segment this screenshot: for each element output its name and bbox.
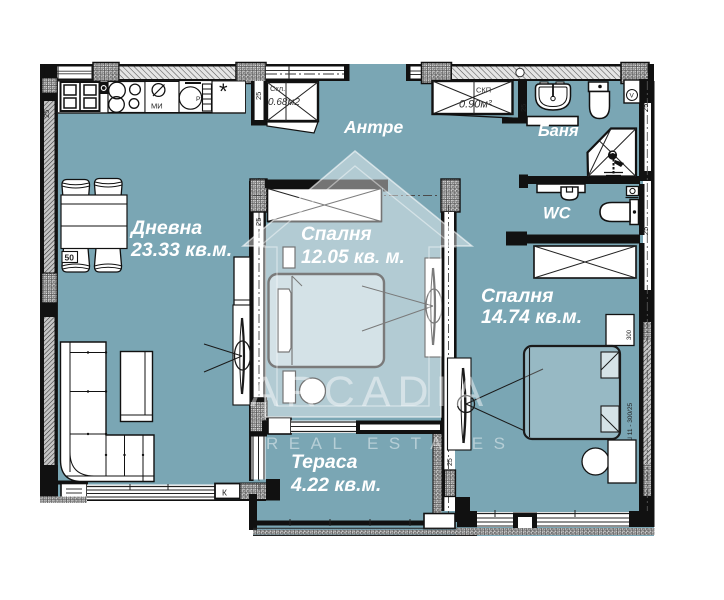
svg-text:25: 25 bbox=[42, 110, 51, 118]
svg-text:Антре: Антре bbox=[343, 117, 403, 137]
svg-text:Дневна: Дневна bbox=[129, 217, 202, 239]
svg-text:50: 50 bbox=[65, 253, 75, 263]
svg-text:Спалня: Спалня bbox=[301, 224, 372, 245]
svg-text:25: 25 bbox=[254, 218, 263, 226]
svg-text:К: К bbox=[222, 488, 227, 498]
svg-text:300: 300 bbox=[627, 329, 633, 340]
svg-text:Спалня: Спалня bbox=[481, 285, 554, 307]
svg-text:Тераса: Тераса bbox=[291, 451, 358, 473]
svg-text:14.74 кв.м.: 14.74 кв.м. bbox=[481, 306, 582, 328]
svg-text:*: * bbox=[219, 79, 228, 104]
svg-text:23.33 кв.м.: 23.33 кв.м. bbox=[130, 239, 232, 261]
svg-text:СКП: СКП bbox=[476, 86, 491, 95]
svg-text:WC: WC bbox=[543, 205, 572, 223]
svg-text:Скл.: Скл. bbox=[270, 84, 285, 93]
svg-text:25: 25 bbox=[641, 227, 650, 235]
svg-text:25: 25 bbox=[447, 458, 454, 466]
svg-text:ARCADIA: ARCADIA bbox=[250, 368, 490, 416]
svg-text:4.22 кв.м.: 4.22 кв.м. bbox=[290, 474, 381, 496]
svg-text:Ш 11 - 300/25: Ш 11 - 300/25 bbox=[627, 402, 634, 443]
svg-text:25: 25 bbox=[641, 104, 650, 112]
svg-text:МИ: МИ bbox=[151, 102, 163, 111]
svg-text:Баня: Баня bbox=[538, 122, 579, 140]
svg-text:25: 25 bbox=[519, 104, 528, 112]
svg-text:0.90м²: 0.90м² bbox=[459, 99, 492, 111]
svg-text:12.05 кв. м.: 12.05 кв. м. bbox=[301, 247, 405, 268]
svg-text:25: 25 bbox=[254, 92, 263, 100]
svg-text:0.68м2: 0.68м2 bbox=[268, 97, 300, 108]
svg-text:V: V bbox=[630, 93, 635, 100]
